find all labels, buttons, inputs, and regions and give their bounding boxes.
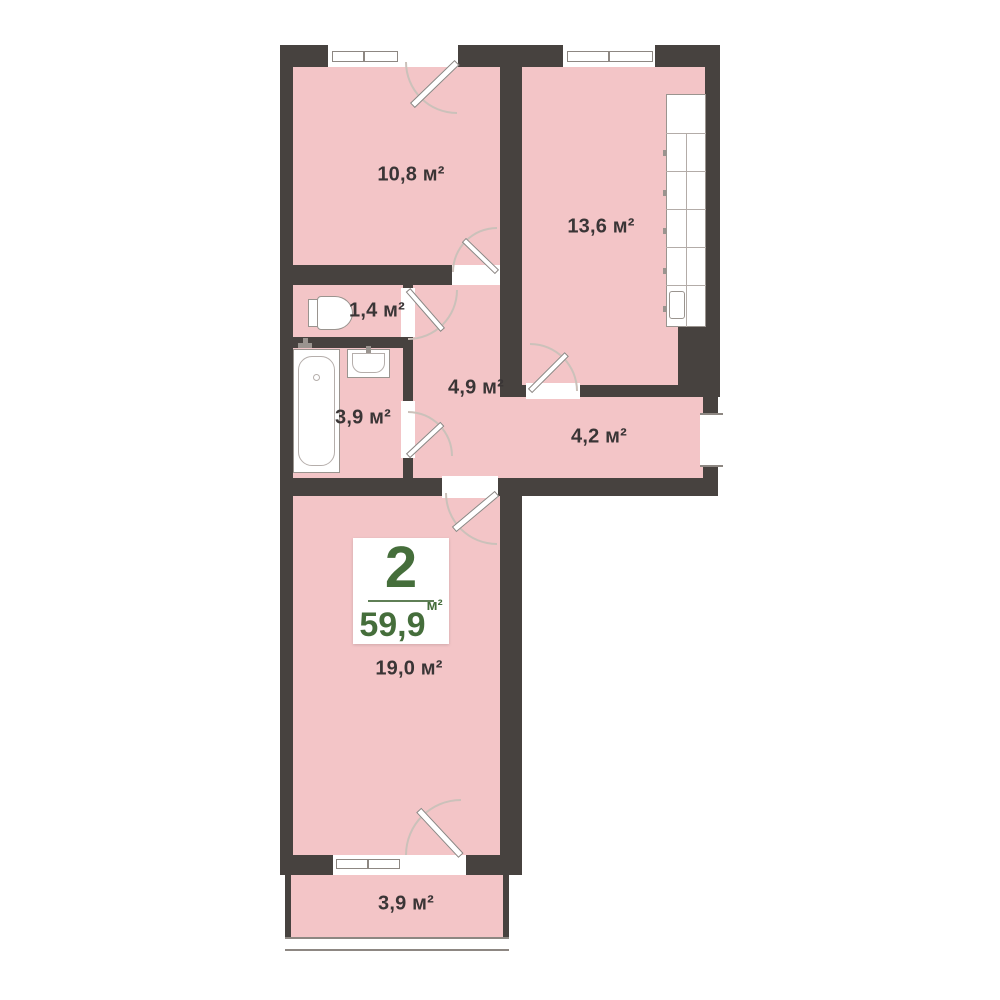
wall-balcony-left: [285, 875, 291, 938]
rooms-count: 2: [385, 540, 417, 595]
kitchen-window: [567, 51, 653, 62]
badge-divider: [368, 600, 434, 602]
counter-handle: [663, 150, 667, 156]
kitchen-area-label: 13,6 м²: [567, 216, 634, 239]
wall-living-right: [500, 478, 522, 875]
bathtub-drain: [313, 374, 320, 381]
bedroom-window: [332, 51, 398, 62]
hallway-area-label: 4,9 м²: [448, 377, 504, 400]
total-area: 59,9м²: [359, 608, 442, 642]
counter-handle: [663, 306, 667, 312]
apartment-summary-badge: 2 59,9м²: [353, 538, 449, 644]
counter-divider: [686, 133, 687, 327]
bathroom-area-label: 3,9 м²: [335, 407, 391, 430]
wall-shaft: [678, 325, 718, 397]
bedroom-area-label: 10,8 м²: [377, 164, 444, 187]
bathroom-sink-basin: [352, 353, 385, 373]
living-window-mullion: [367, 859, 369, 869]
bathroom-sink-tap: [366, 346, 371, 353]
room-corridor-area: [413, 397, 703, 478]
toilet-bowl-icon: [317, 296, 353, 330]
entrance-door: [700, 413, 723, 467]
corridor-area-label: 4,2 м²: [571, 426, 627, 449]
wall-left: [280, 45, 293, 875]
balcony-area-label: 3,9 м²: [378, 893, 434, 916]
counter-handle: [663, 268, 667, 274]
bathtub-faucet-icon2: [303, 338, 308, 346]
wall-hall-bottom: [280, 478, 718, 496]
opening-balcony-door: [403, 855, 466, 875]
kitchen-window-mullion: [608, 51, 610, 62]
total-area-unit: м²: [427, 597, 443, 614]
counter-handle: [663, 190, 667, 196]
kitchen-sink-icon: [669, 291, 685, 319]
bathtub-inner: [298, 356, 335, 466]
floor-plan: 10,8 м² 13,6 м² 1,4 м² 3,9 м² 4,9 м² 4,2…: [0, 0, 1000, 1000]
wall-bedroom-kitchen: [500, 45, 522, 397]
counter-handle: [663, 228, 667, 234]
total-area-value: 59,9: [359, 606, 425, 644]
balcony-window: [285, 937, 509, 951]
living-area-label: 19,0 м²: [375, 658, 442, 681]
wall-balcony-right: [503, 875, 509, 938]
bedroom-window-mullion: [363, 51, 365, 62]
wc-area-label: 1,4 м²: [349, 300, 405, 323]
